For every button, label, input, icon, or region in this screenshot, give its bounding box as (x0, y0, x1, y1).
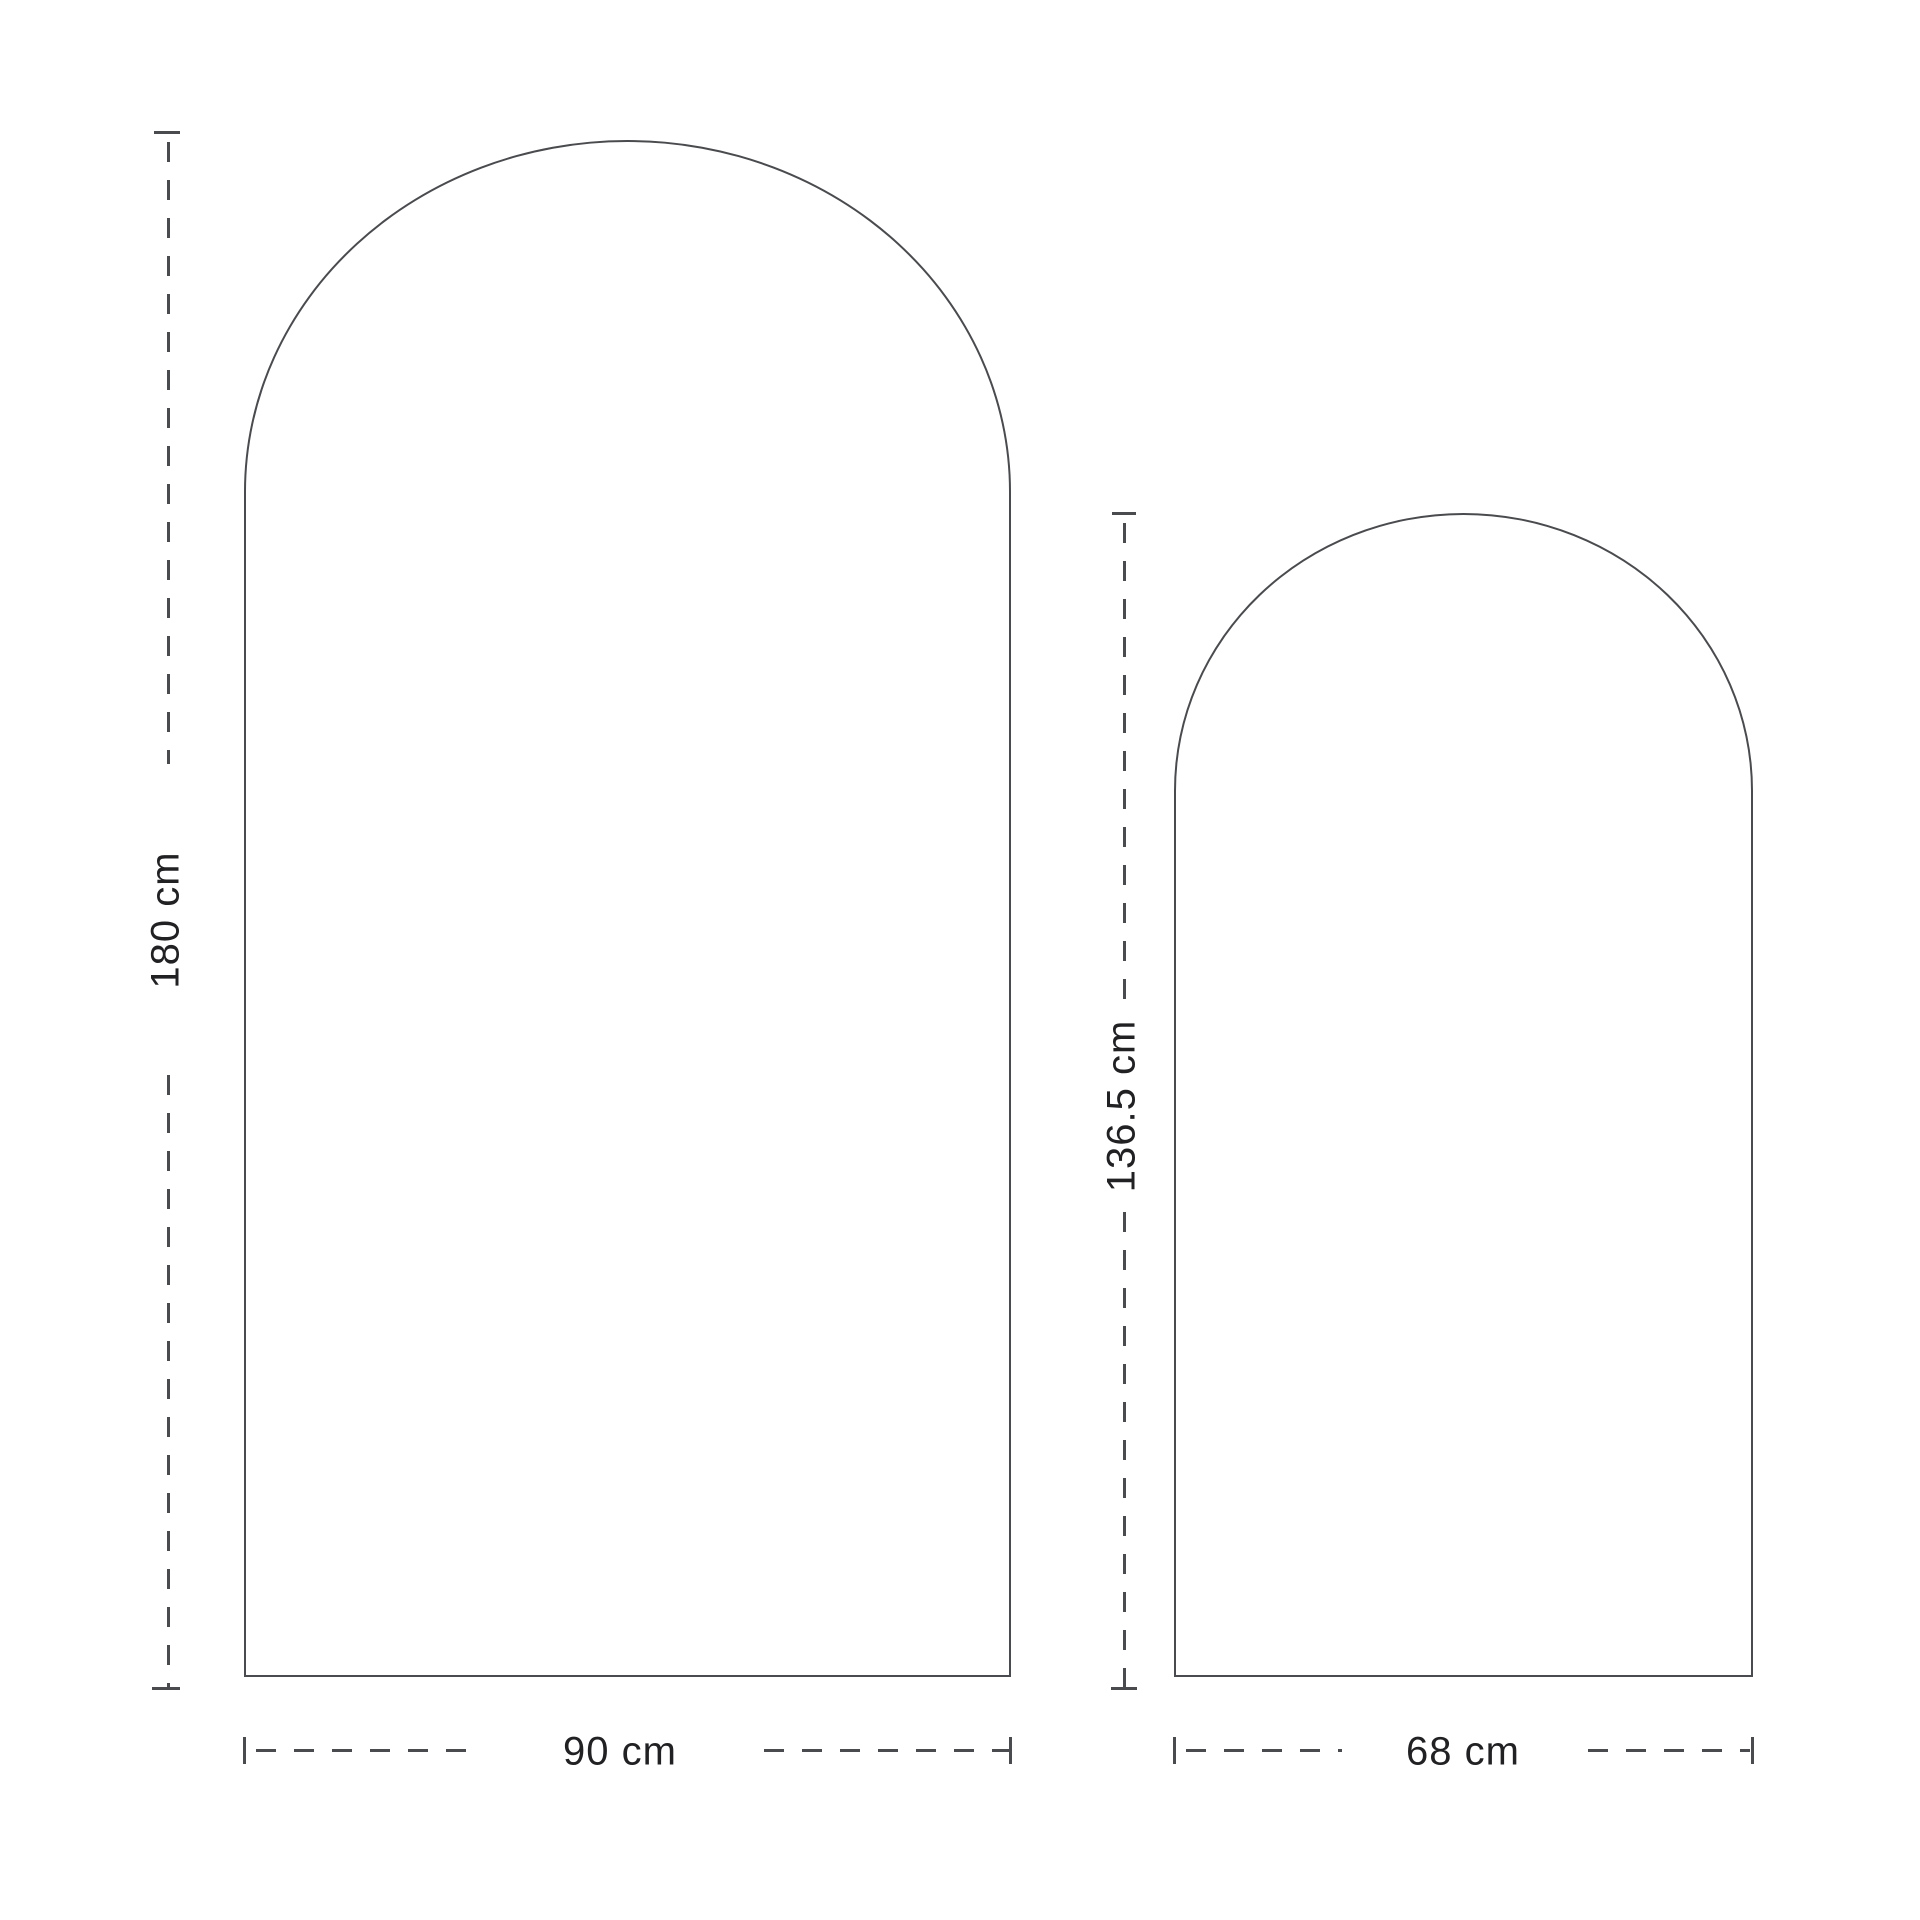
dimension-dashed-line (764, 1749, 1010, 1752)
dimension-dashed-line (1123, 1212, 1126, 1689)
dimension-dashed-line (1588, 1749, 1750, 1752)
small-arch-height-label: 136.5 cm (1100, 1020, 1145, 1193)
dimension-tick (243, 1737, 246, 1764)
dimension-tick (1111, 1687, 1137, 1690)
dimension-tick (152, 1687, 180, 1690)
dimension-tick (1009, 1737, 1012, 1764)
dimension-dashed-line (167, 142, 170, 764)
dimension-diagram: 180 cm 90 cm 136.5 cm 68 cm (0, 0, 1920, 1920)
dimension-dashed-line (256, 1749, 482, 1752)
dimension-dashed-line (1186, 1749, 1342, 1752)
dimension-tick (1112, 512, 1136, 515)
small-arch-outline (1174, 513, 1753, 1677)
large-arch-outline (244, 140, 1011, 1677)
dimension-dashed-line (167, 1075, 170, 1689)
dimension-tick (154, 131, 180, 134)
large-arch-width-label: 90 cm (563, 1730, 677, 1775)
dimension-tick (1173, 1737, 1176, 1764)
large-arch-height-label: 180 cm (144, 851, 189, 988)
small-arch-width-label: 68 cm (1406, 1730, 1520, 1775)
dimension-tick (1751, 1737, 1754, 1764)
dimension-dashed-line (1123, 523, 1126, 1000)
